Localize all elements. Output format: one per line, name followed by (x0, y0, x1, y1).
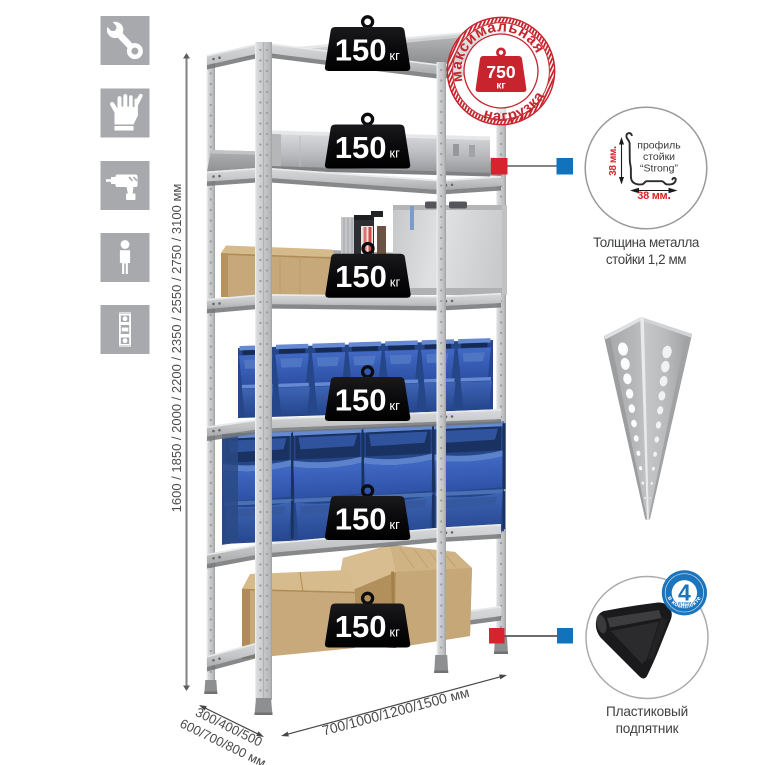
svg-text:150: 150 (335, 130, 387, 165)
svg-text:750: 750 (486, 62, 515, 82)
svg-text:стойки 1,2 мм: стойки 1,2 мм (606, 252, 686, 267)
svg-text:кг: кг (496, 81, 505, 92)
svg-text:подпятник: подпятник (616, 721, 680, 736)
svg-text:кг: кг (389, 146, 400, 161)
svg-text:150: 150 (335, 383, 387, 418)
svg-text:150: 150 (335, 609, 387, 644)
svg-text:150: 150 (335, 33, 387, 68)
svg-text:стойки: стойки (643, 151, 675, 163)
svg-text:кг: кг (389, 48, 400, 63)
svg-text:кг: кг (389, 625, 400, 640)
svg-text:кг: кг (389, 517, 400, 532)
svg-text:Толщина металла: Толщина металла (593, 235, 700, 250)
svg-text:150: 150 (335, 259, 387, 294)
svg-text:профиль: профиль (637, 140, 681, 152)
svg-text:кг: кг (390, 275, 401, 290)
svg-text:38 мм.: 38 мм. (637, 187, 670, 202)
svg-text:Пластиковый: Пластиковый (606, 704, 688, 719)
svg-text:1600 / 1850 / 2000 / 2200 / 23: 1600 / 1850 / 2000 / 2200 / 2350 / 2550 … (169, 184, 184, 513)
svg-text:38 мм.: 38 мм. (605, 146, 619, 176)
svg-text:“Strong”: “Strong” (640, 163, 678, 175)
svg-text:150: 150 (335, 502, 387, 537)
svg-text:кг: кг (389, 398, 400, 413)
